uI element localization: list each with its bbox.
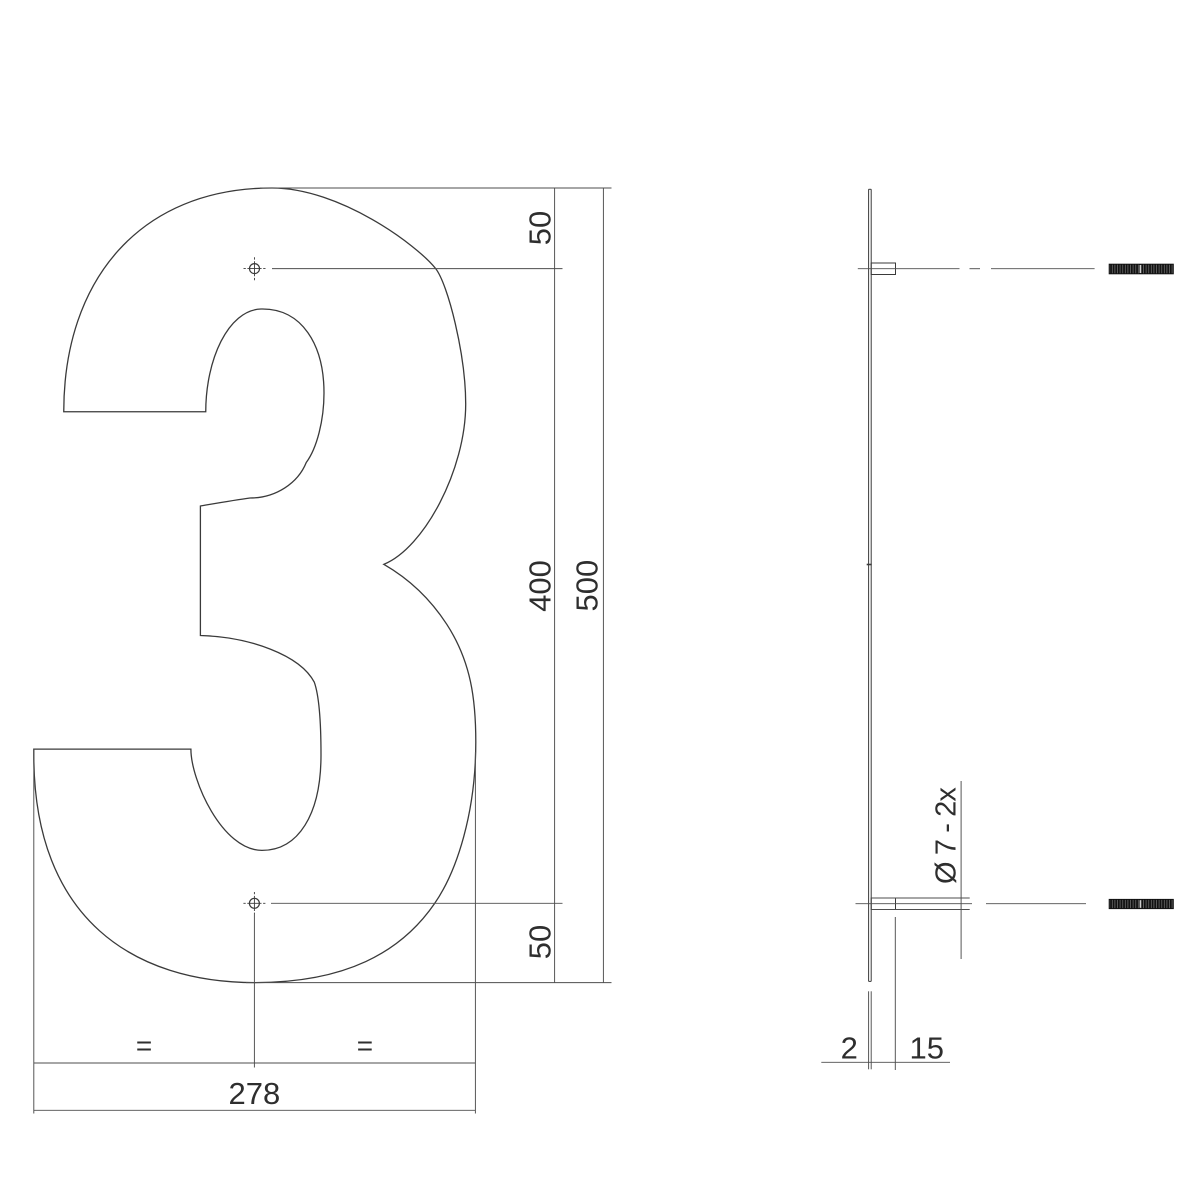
- svg-text:500: 500: [569, 560, 604, 612]
- svg-text:400: 400: [523, 560, 558, 612]
- svg-text:Ø 7 - 2x: Ø 7 - 2x: [931, 787, 963, 884]
- svg-text:15: 15: [909, 1031, 943, 1066]
- svg-text:=: =: [357, 1030, 373, 1061]
- svg-text:=: =: [136, 1030, 152, 1061]
- svg-text:50: 50: [523, 925, 558, 959]
- svg-text:50: 50: [523, 211, 558, 245]
- svg-text:2: 2: [841, 1031, 858, 1066]
- svg-text:278: 278: [229, 1076, 281, 1111]
